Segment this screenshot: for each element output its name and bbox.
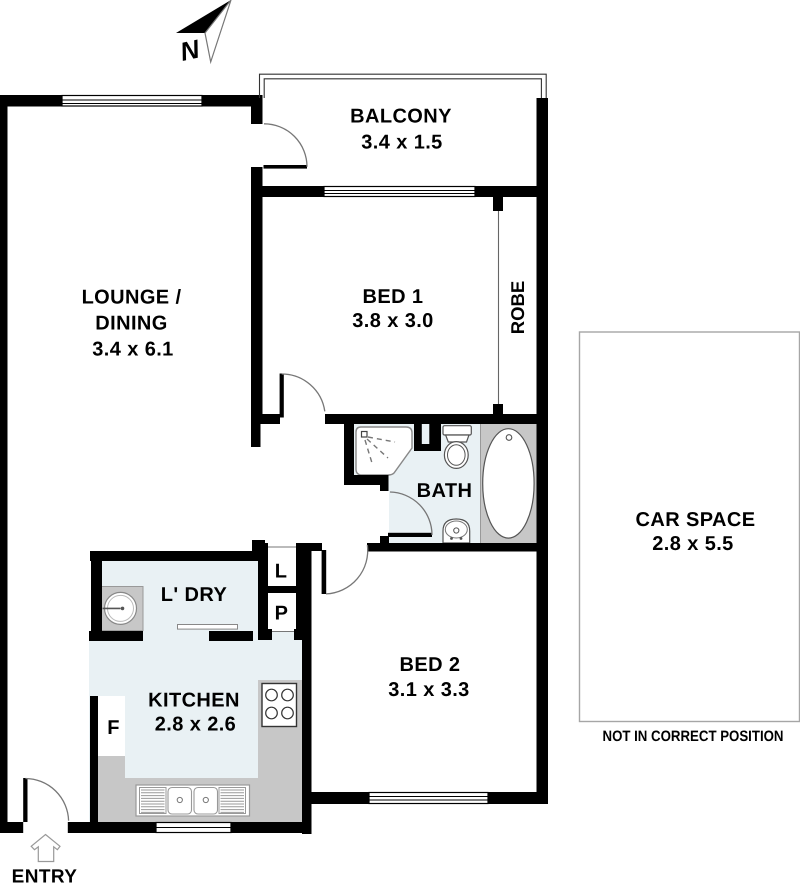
svg-text:LOUNGE /: LOUNGE / xyxy=(82,287,182,309)
svg-text:BED 1: BED 1 xyxy=(363,286,424,308)
svg-text:P: P xyxy=(275,603,289,625)
svg-text:NOT IN CORRECT POSITION: NOT IN CORRECT POSITION xyxy=(603,728,784,745)
svg-text:ROBE: ROBE xyxy=(507,281,528,334)
svg-text:2.8 x 2.6: 2.8 x 2.6 xyxy=(155,714,236,736)
svg-text:3.4 x 1.5: 3.4 x 1.5 xyxy=(361,132,442,154)
svg-text:L: L xyxy=(275,561,288,583)
svg-text:L' DRY: L' DRY xyxy=(161,584,228,606)
svg-text:BALCONY: BALCONY xyxy=(350,106,452,128)
svg-text:3.8 x 3.0: 3.8 x 3.0 xyxy=(352,310,433,332)
svg-text:F: F xyxy=(107,717,120,739)
svg-text:3.1 x 3.3: 3.1 x 3.3 xyxy=(388,679,469,701)
svg-text:BATH: BATH xyxy=(417,480,473,502)
svg-text:KITCHEN: KITCHEN xyxy=(148,690,240,712)
svg-text:BED 2: BED 2 xyxy=(400,654,461,676)
svg-text:ENTRY: ENTRY xyxy=(12,867,78,883)
svg-text:2.8 x 5.5: 2.8 x 5.5 xyxy=(652,533,733,555)
svg-text:DINING: DINING xyxy=(95,313,167,335)
svg-text:CAR SPACE: CAR SPACE xyxy=(636,509,756,531)
svg-text:3.4 x 6.1: 3.4 x 6.1 xyxy=(92,339,173,361)
